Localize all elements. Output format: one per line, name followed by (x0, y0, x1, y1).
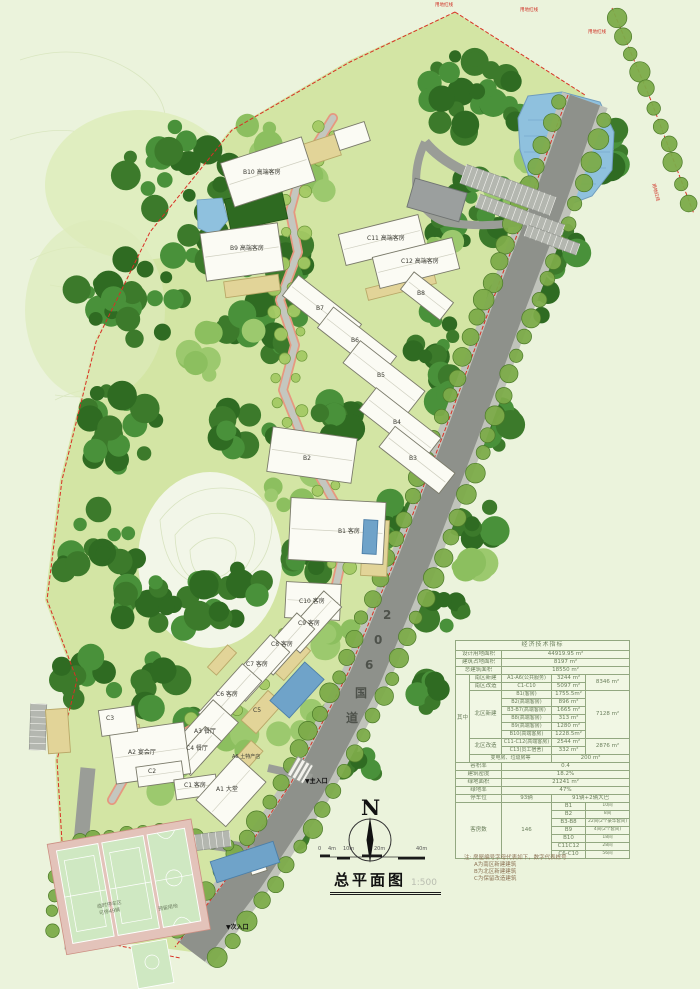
boundary-label-1: 用地红线 (435, 3, 453, 8)
building-label-c11: C11 高端客房 (367, 236, 405, 242)
secondary-entrance-marker: ▼次入口 (226, 925, 249, 931)
building-label-a2: A2 宴会厅 (128, 750, 156, 756)
road-206-label-char: 6 (365, 658, 373, 672)
building-label-c7: C7 客房 (246, 662, 268, 668)
building-label-b8: B8 (417, 291, 425, 297)
site-plan-page: B10 高端客房 B9 高端客房 C11 高端客房 C12 高端客房 B8 B7… (0, 0, 700, 989)
boundary-label-2: 用地红线 (520, 8, 538, 13)
building-label-c2: C2 (148, 769, 156, 775)
scale-tick-0: 0 (318, 846, 321, 852)
title-scale: 1:500 (411, 878, 437, 888)
scale-tick-20m: 20m (374, 846, 385, 852)
half-court (131, 939, 174, 989)
among-cell: 其中 (456, 675, 470, 763)
building-label-b10: B10 高端客房 (243, 170, 281, 176)
building-label-c10: C10 客房 (299, 599, 325, 605)
tech-indicators-table: 经济技术指标 设计用地面积44919.95 m² 建筑占地面积8197 m² 总… (455, 640, 630, 859)
building-label-b3: B3 (409, 456, 417, 462)
road-206-label-char: 国 (355, 684, 367, 701)
road-206-label-char: 0 (374, 633, 382, 647)
building-label-a6: A6 土特产店 (232, 754, 260, 760)
building-label-b2: B2 (303, 456, 311, 462)
building-label-a3: A3 餐厅 (194, 729, 216, 735)
building-label-b6: B6 (351, 338, 359, 344)
scale-tick-10m: 10m (343, 846, 354, 852)
building-label-c4: C4 餐厅 (186, 746, 208, 752)
scale-tick-40m: 40m (416, 846, 427, 852)
legend-note: 注: 房屋编号字母代表如下，数字代表栋号 A为南区新建建筑 B为北区新建建筑 C… (464, 855, 567, 883)
building-label-c1: C1 客房 (184, 783, 206, 789)
scale-tick-4m: 4m (328, 846, 336, 852)
main-entrance-marker: ▼主入口 (305, 779, 328, 785)
north-label: N (361, 795, 380, 820)
road-206-label-char: 道 (346, 709, 358, 726)
building-label-b1: B1 客房 (338, 529, 360, 535)
building-label-c8: C8 客房 (271, 642, 293, 648)
title-text: 总平面图 (334, 871, 406, 889)
building-label-c3: C3 (106, 716, 114, 722)
building-label-c9: C9 客房 (298, 621, 320, 627)
note-heading: 注: 房屋编号字母代表如下，数字代表栋号 (464, 855, 567, 862)
building-label-b7: B7 (316, 306, 324, 312)
note-c: C为保留改造建筑 (474, 876, 567, 883)
building-label-c5: C5 (253, 708, 261, 714)
building-label-b9: B9 高端客房 (230, 246, 264, 252)
boundary-label-3: 用地红线 (588, 30, 606, 35)
drawing-title: 总平面图1:500 (330, 869, 441, 895)
building-label-b5: B5 (377, 373, 385, 379)
note-b: B为北区新建建筑 (474, 869, 567, 876)
building-label-a1: A1 大堂 (216, 787, 238, 793)
building-label-b4: B4 (393, 420, 401, 426)
road-206-label-char: 2 (383, 608, 391, 622)
table-title: 经济技术指标 (456, 641, 630, 651)
note-a: A为南区新建建筑 (474, 862, 567, 869)
building-label-c12: C12 高端客房 (401, 259, 439, 265)
building-label-c6: C6 客房 (216, 692, 238, 698)
